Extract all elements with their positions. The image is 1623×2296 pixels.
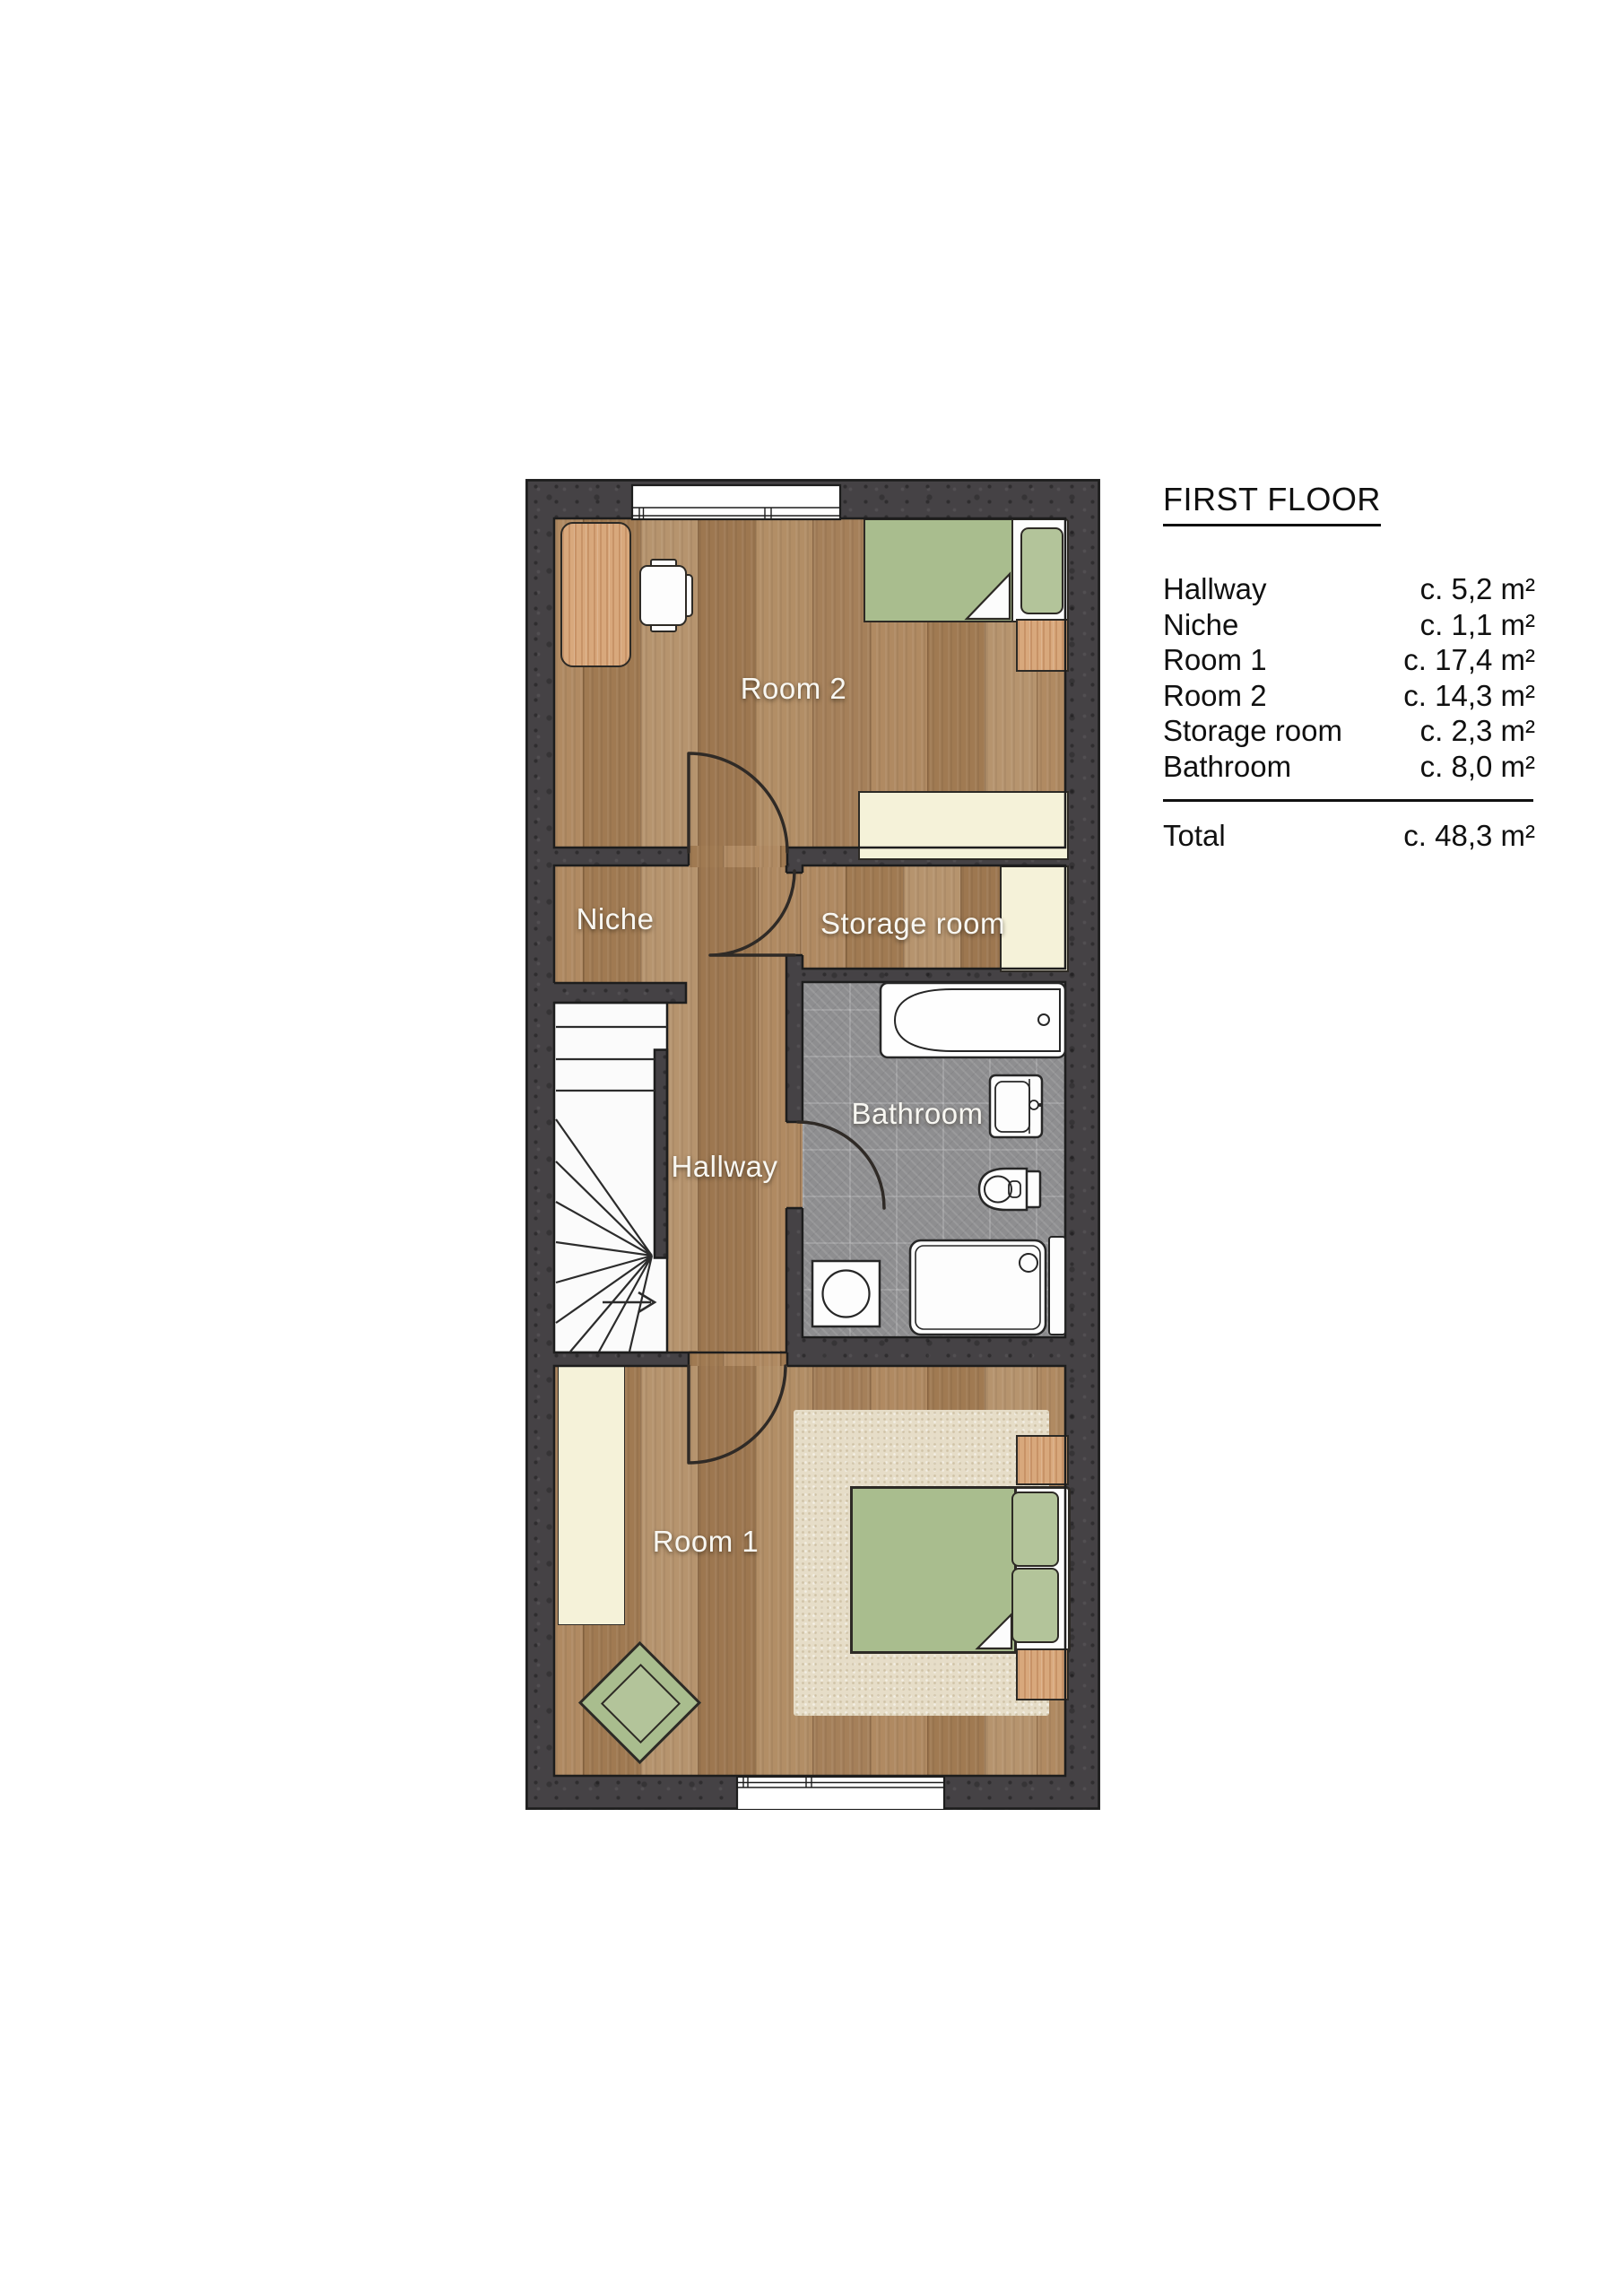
- legend-row-name: Room 2: [1163, 678, 1267, 714]
- legend-row-name: Room 1: [1163, 642, 1267, 678]
- storage-label: Storage room: [820, 907, 1005, 941]
- legend-row-name: Niche: [1163, 607, 1238, 643]
- legend-row: Hallwayc. 5,2 m²: [1163, 571, 1535, 607]
- chair-seat: [639, 565, 687, 626]
- room2-door-threshold: [689, 846, 787, 867]
- window-top: [632, 485, 840, 519]
- legend-total-name: Total: [1163, 818, 1226, 854]
- bed1-pillow-bottom: [1011, 1568, 1059, 1643]
- room1-label: Room 1: [653, 1525, 759, 1559]
- niche-label: Niche: [577, 902, 655, 936]
- desk: [560, 522, 631, 667]
- legend-row-area: c. 1,1 m²: [1420, 607, 1535, 643]
- legend-row-area: c. 14,3 m²: [1403, 678, 1535, 714]
- legend-row-name: Hallway: [1163, 571, 1267, 607]
- wardrobe-room1: [558, 1366, 625, 1625]
- hallway-label: Hallway: [671, 1150, 777, 1184]
- bed2-pillow: [1020, 527, 1063, 614]
- legend-row-name: Bathroom: [1163, 749, 1291, 785]
- storage-cabinet: [1000, 865, 1069, 972]
- legend-rows: Hallwayc. 5,2 m² Nichec. 1,1 m² Room 1c.…: [1163, 571, 1535, 784]
- legend-row: Bathroomc. 8,0 m²: [1163, 749, 1535, 785]
- page: { "legend": { "title": "FIRST FLOOR", "r…: [0, 0, 1623, 2296]
- storage-door-threshold: [786, 873, 803, 955]
- legend-row-area: c. 8,0 m²: [1420, 749, 1535, 785]
- legend-title: FIRST FLOOR: [1163, 481, 1381, 526]
- stair-balustrade: [655, 1049, 667, 1257]
- legend-row: Room 2c. 14,3 m²: [1163, 678, 1535, 714]
- legend: FIRST FLOOR Hallwayc. 5,2 m² Nichec. 1,1…: [1163, 481, 1535, 526]
- window-bottom: [737, 1777, 944, 1810]
- legend-row-area: c. 17,4 m²: [1403, 642, 1535, 678]
- room2-label: Room 2: [741, 672, 847, 706]
- legend-row-area: c. 2,3 m²: [1420, 713, 1535, 749]
- legend-divider: [1163, 799, 1533, 802]
- bathroom-floor: [803, 982, 1065, 1337]
- bed2-blanket: [864, 518, 1013, 622]
- legend-row-area: c. 5,2 m²: [1420, 571, 1535, 607]
- bathroom-door-threshold: [786, 1122, 803, 1208]
- bathroom-label: Bathroom: [851, 1097, 983, 1131]
- legend-row: Nichec. 1,1 m²: [1163, 607, 1535, 643]
- floor-plan: Room 2 Niche Storage room Hallway Bathro…: [525, 479, 1100, 1810]
- nightstand-room1-bottom: [1016, 1648, 1069, 1700]
- bed1-pillow-top: [1011, 1492, 1059, 1567]
- legend-row: Room 1c. 17,4 m²: [1163, 642, 1535, 678]
- nightstand-room2: [1016, 619, 1069, 672]
- legend-total: Totalc. 48,3 m²: [1163, 818, 1535, 854]
- room1-door-threshold: [689, 1351, 787, 1366]
- legend-row-name: Storage room: [1163, 713, 1342, 749]
- sideboard-room2: [858, 791, 1069, 860]
- legend-row: Storage roomc. 2,3 m²: [1163, 713, 1535, 749]
- niche-wall: [554, 983, 686, 1003]
- legend-total-area: c. 48,3 m²: [1403, 818, 1535, 854]
- bed1-blanket: [850, 1486, 1017, 1654]
- nightstand-room1-top: [1016, 1435, 1069, 1485]
- stairwell: [554, 1003, 667, 1352]
